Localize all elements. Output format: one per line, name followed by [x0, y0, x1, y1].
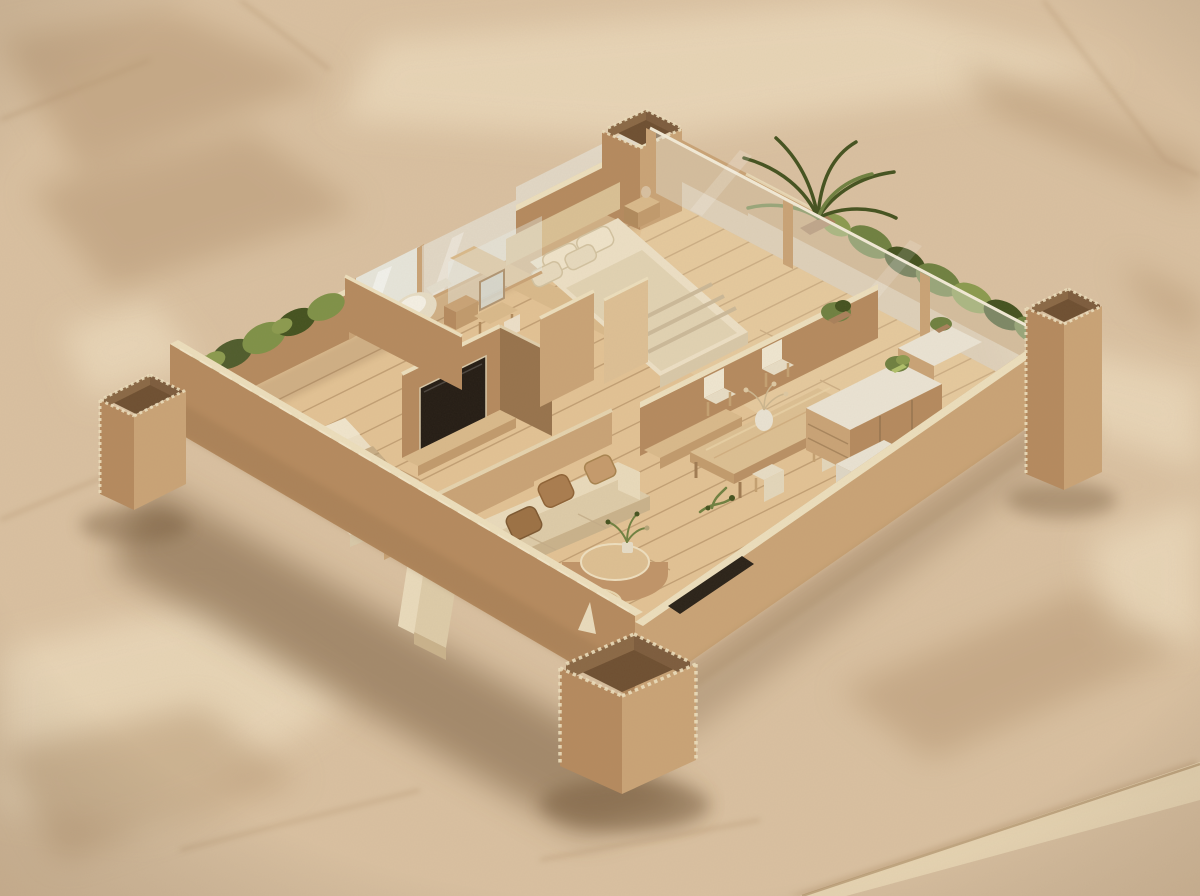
- photo-cardboard-floorplan-model: [0, 0, 1200, 896]
- vignette-overlay: [0, 0, 1200, 896]
